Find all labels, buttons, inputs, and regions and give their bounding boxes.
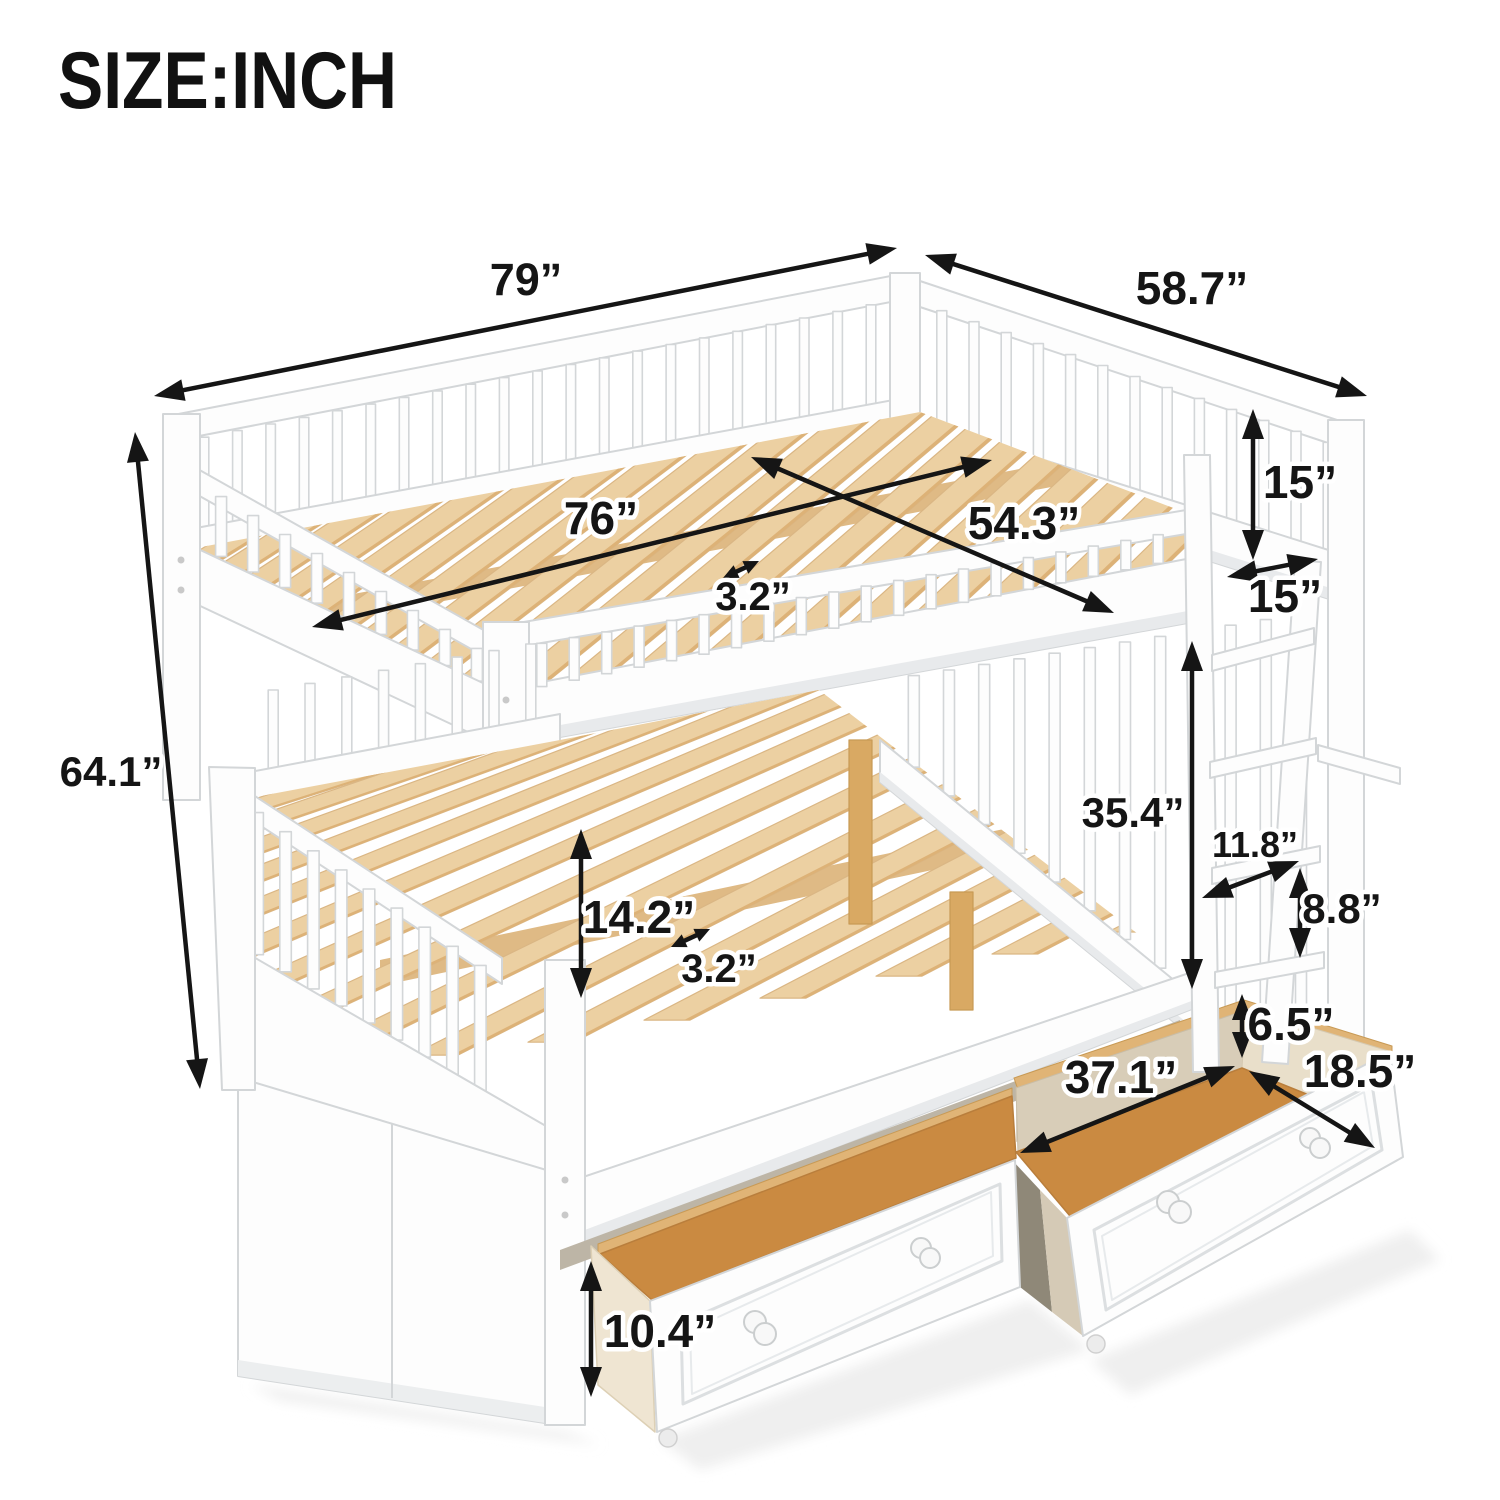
svg-text:76”: 76” bbox=[564, 492, 638, 544]
svg-text:54.3”: 54.3” bbox=[968, 497, 1081, 549]
svg-text:15”: 15” bbox=[1248, 570, 1322, 622]
svg-text:3.2”: 3.2” bbox=[681, 947, 757, 991]
svg-text:18.5”: 18.5” bbox=[1304, 1045, 1417, 1097]
svg-text:35.4”: 35.4” bbox=[1082, 789, 1185, 836]
svg-text:79”: 79” bbox=[490, 254, 563, 305]
svg-text:64.1”: 64.1” bbox=[60, 748, 163, 795]
svg-text:15”: 15” bbox=[1263, 456, 1337, 508]
svg-text:3.2”: 3.2” bbox=[715, 575, 791, 619]
svg-text:SIZE:INCH: SIZE:INCH bbox=[58, 36, 397, 126]
svg-text:6.5”: 6.5” bbox=[1248, 998, 1335, 1050]
svg-text:10.4”: 10.4” bbox=[604, 1305, 717, 1357]
svg-text:58.7”: 58.7” bbox=[1136, 262, 1249, 314]
svg-text:11.8”: 11.8” bbox=[1212, 824, 1298, 865]
svg-text:37.1”: 37.1” bbox=[1065, 1051, 1178, 1103]
svg-text:14.2”: 14.2” bbox=[583, 891, 696, 943]
svg-text:8.8”: 8.8” bbox=[1302, 885, 1381, 932]
